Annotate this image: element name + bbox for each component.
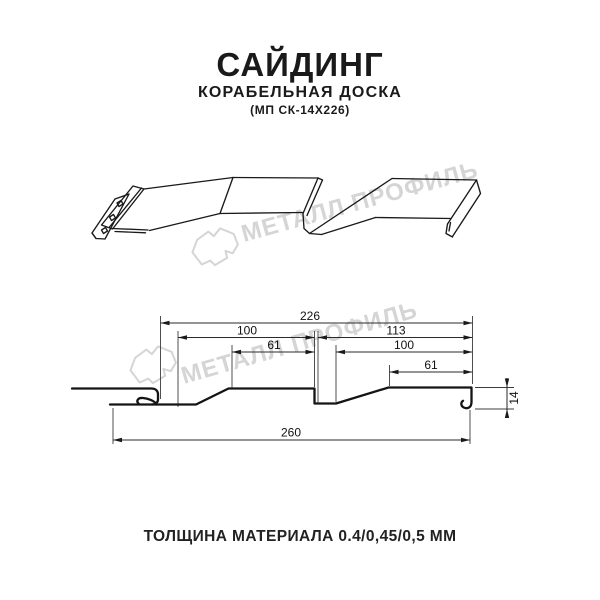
panel-profile — [110, 388, 472, 409]
dim-right-pitch: 100 — [394, 338, 414, 352]
section-profile — [72, 388, 472, 409]
product-card: САЙДИНГ КОРАБЕЛЬНАЯ ДОСКА (МП СК-14Х226)… — [0, 0, 600, 600]
dim-left-face: 61 — [267, 338, 281, 352]
metal-profile-logo-icon — [128, 345, 178, 386]
dim-right-face: 61 — [424, 358, 438, 372]
adjacent-panel-lock — [72, 389, 158, 405]
dim-left-pitch: 100 — [237, 324, 257, 338]
dim-height: 14 — [507, 391, 521, 405]
dim-right-span: 113 — [386, 324, 405, 338]
watermark-text: МЕТАЛЛ ПРОФИЛЬ — [238, 156, 481, 247]
watermark-upper: МЕТАЛЛ ПРОФИЛЬ — [190, 156, 481, 267]
material-thickness-label: ТОЛЩИНА МАТЕРИАЛА 0.4/0,45/0,5 ММ — [0, 528, 600, 546]
technical-drawing-canvas: МЕТАЛЛ ПРОФИЛЬ — [0, 0, 600, 600]
nail-hole-icon — [102, 228, 108, 234]
dim-overall-bottom: 260 — [281, 426, 301, 440]
dim-overall-top: 226 — [300, 309, 320, 323]
metal-profile-logo-icon — [190, 227, 240, 268]
